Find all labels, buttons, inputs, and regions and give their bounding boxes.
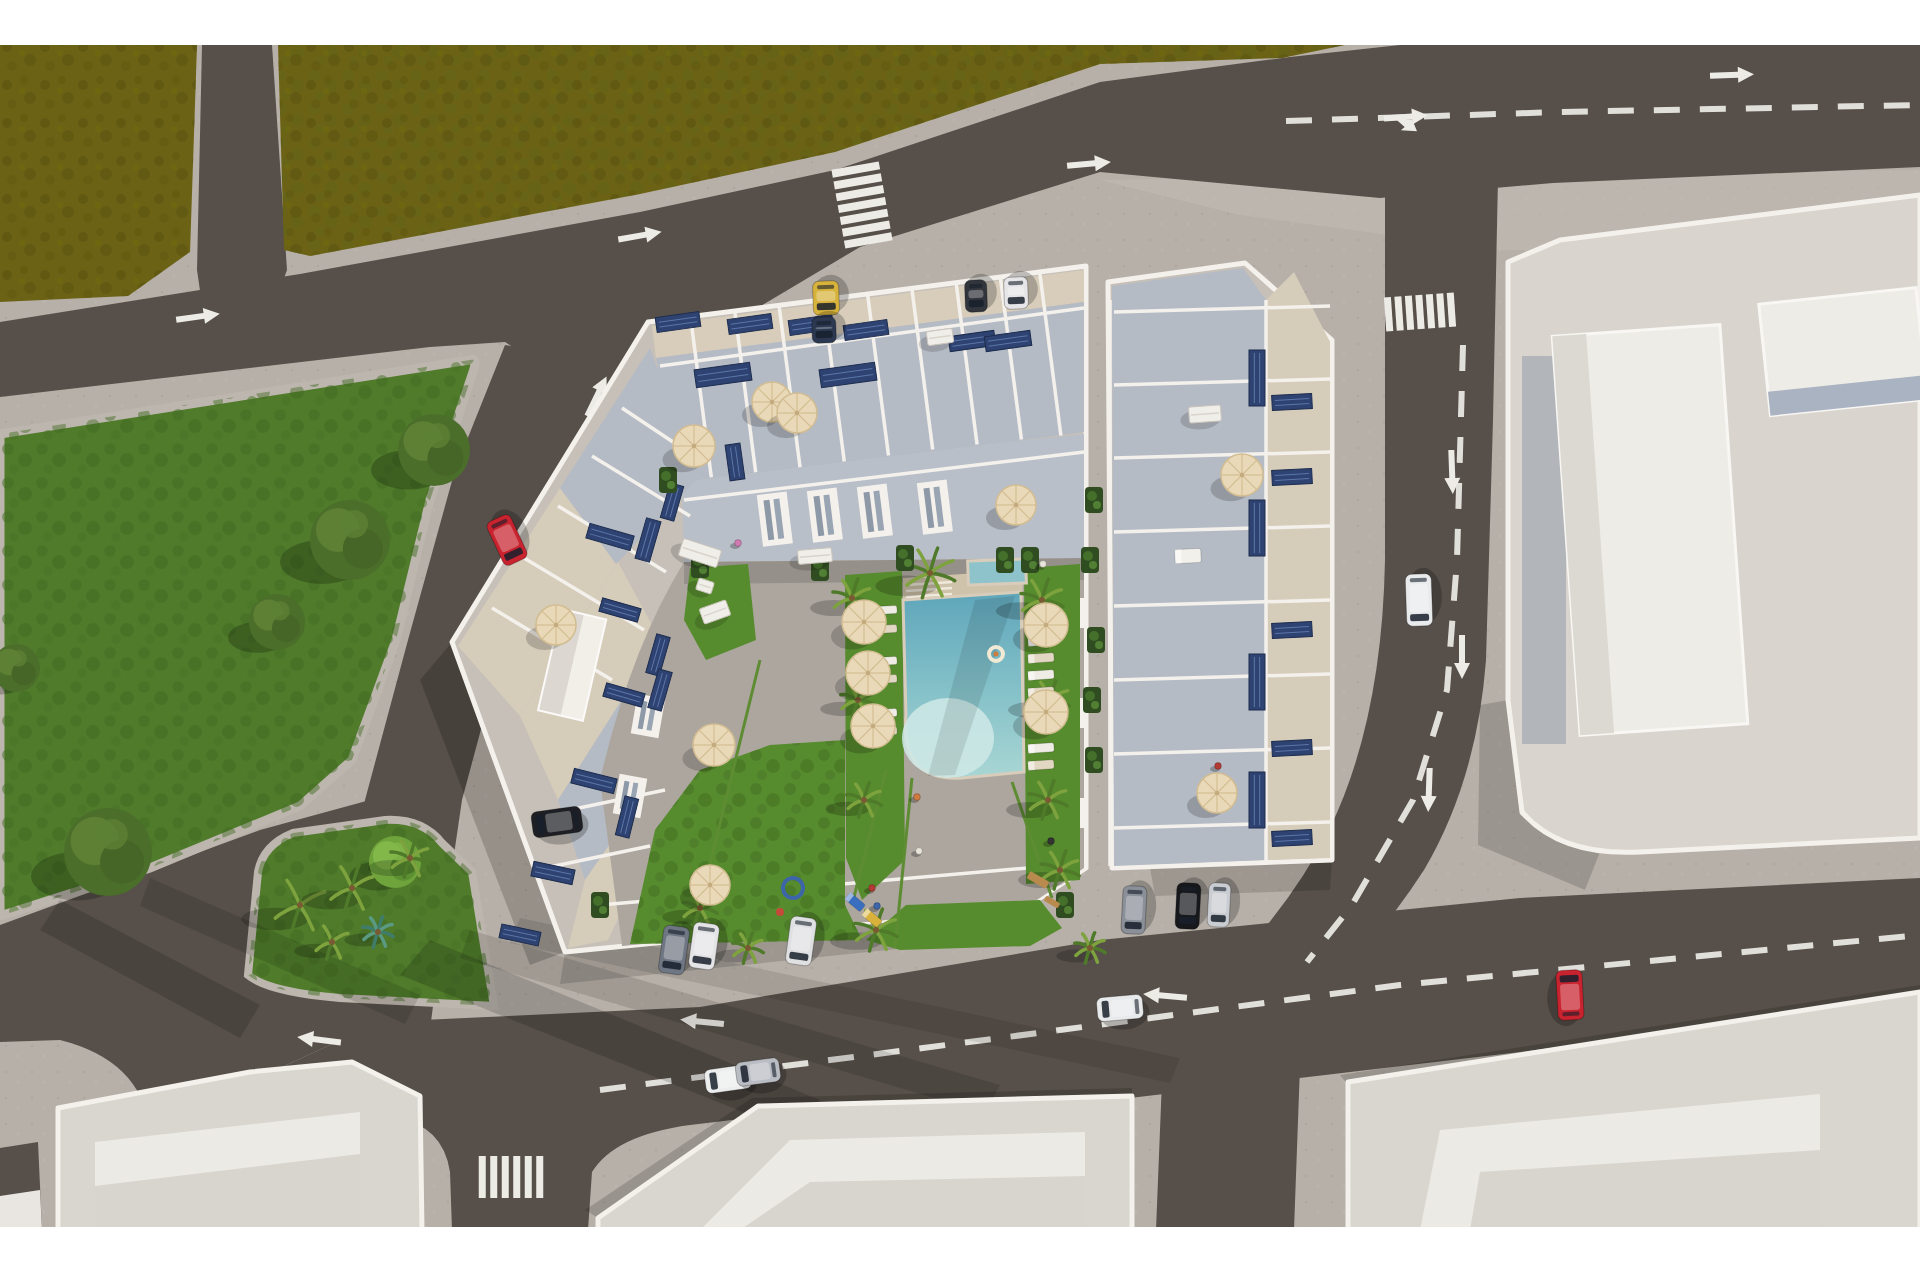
top-white-bar: [0, 0, 1920, 45]
corner-building-edge: [0, 1190, 42, 1230]
solar-panel: [1272, 393, 1313, 410]
planter-shrub: [591, 892, 609, 918]
warehouse-box-small: [1759, 288, 1920, 416]
top-left-vertical-road: [197, 45, 287, 332]
warehouse-building: [1508, 195, 1920, 852]
sun-lounger: [1028, 760, 1055, 771]
east-wing-beige-strip: [1266, 272, 1330, 860]
planter-shrub: [1021, 547, 1039, 573]
sun-lounger: [1028, 743, 1055, 754]
sun-lounger: [1028, 670, 1055, 681]
sun-lounger: [1175, 548, 1202, 563]
warehouse-box-tall: [1552, 325, 1747, 736]
bottom-white-bar: [0, 1227, 1920, 1280]
solar-panel: [1272, 468, 1313, 485]
sun-lounger: [1028, 653, 1055, 664]
solar-panel: [1249, 350, 1265, 406]
planter-shrub: [1085, 487, 1103, 513]
east-wing-terraces: [1112, 268, 1266, 866]
planter-shrub: [1081, 547, 1099, 573]
planter-shrub: [896, 545, 914, 571]
solar-panel: [1272, 829, 1313, 846]
playground-item: [776, 908, 784, 916]
aerial-render-stage: Aerial 3D architectural rendering of a r…: [0, 0, 1920, 1280]
solar-panel: [1272, 739, 1313, 756]
solar-panel: [1249, 500, 1265, 556]
planter-shrub: [1083, 687, 1101, 713]
solar-panel: [1272, 621, 1313, 638]
aerial-site-plan: Aerial 3D architectural rendering of a r…: [0, 0, 1920, 1280]
planter-shrub: [1085, 747, 1103, 773]
planter-shrub: [996, 547, 1014, 573]
farm-field-left-texture: [0, 45, 197, 302]
solar-panel: [1249, 654, 1265, 710]
solar-panel: [1249, 772, 1265, 828]
planter-shrub: [1087, 627, 1105, 653]
